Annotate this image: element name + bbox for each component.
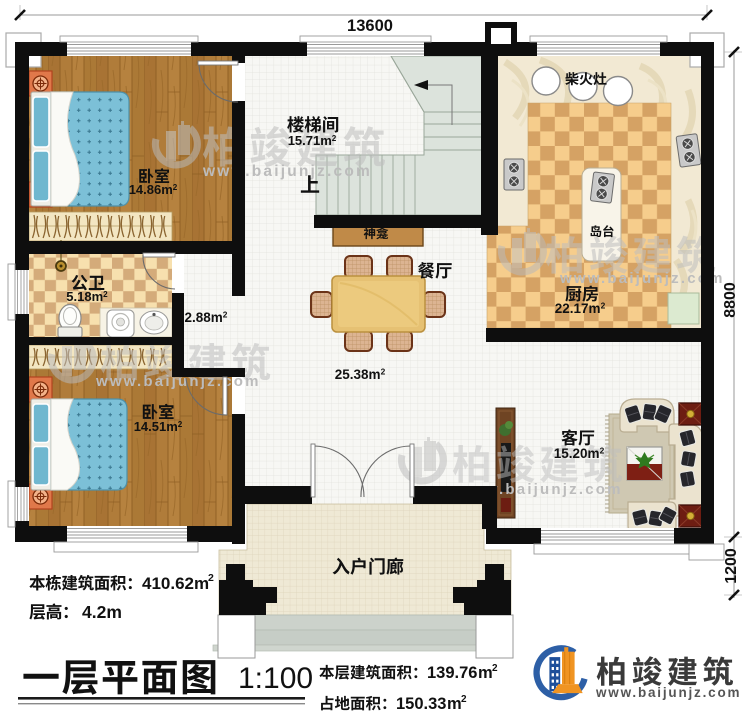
svg-text:150.33: 150.33 — [396, 695, 446, 713]
svg-text:m: m — [447, 695, 462, 713]
svg-text:2.88m2: 2.88m2 — [185, 310, 228, 325]
svg-text:15.20m2: 15.20m2 — [554, 446, 605, 461]
svg-text:5.18m2: 5.18m2 — [66, 289, 108, 304]
svg-text:2: 2 — [208, 572, 214, 584]
svg-text:m: m — [194, 574, 209, 593]
svg-text:www.baijunjz.com: www.baijunjz.com — [595, 685, 741, 700]
svg-text:www.baijunjz.com: www.baijunjz.com — [202, 163, 372, 180]
svg-text:1:100: 1:100 — [238, 662, 313, 695]
svg-text:m: m — [478, 664, 493, 682]
svg-text:2: 2 — [492, 663, 498, 674]
svg-text:410.62: 410.62 — [142, 574, 194, 593]
svg-text:8800: 8800 — [722, 282, 739, 318]
svg-text:25.38m2: 25.38m2 — [335, 367, 386, 382]
svg-text:1200: 1200 — [723, 548, 740, 584]
svg-text:2: 2 — [461, 694, 467, 705]
svg-text:www.baijunjz.com: www.baijunjz.com — [559, 270, 725, 287]
svg-text:14.86m2: 14.86m2 — [129, 182, 178, 197]
svg-text:4.2m: 4.2m — [82, 602, 122, 622]
svg-text:139.76: 139.76 — [427, 664, 477, 682]
svg-text:15.71m2: 15.71m2 — [288, 133, 337, 148]
svg-text:13600: 13600 — [347, 17, 393, 35]
svg-text:22.17m2: 22.17m2 — [555, 301, 606, 316]
svg-text:14.51m2: 14.51m2 — [134, 419, 183, 434]
